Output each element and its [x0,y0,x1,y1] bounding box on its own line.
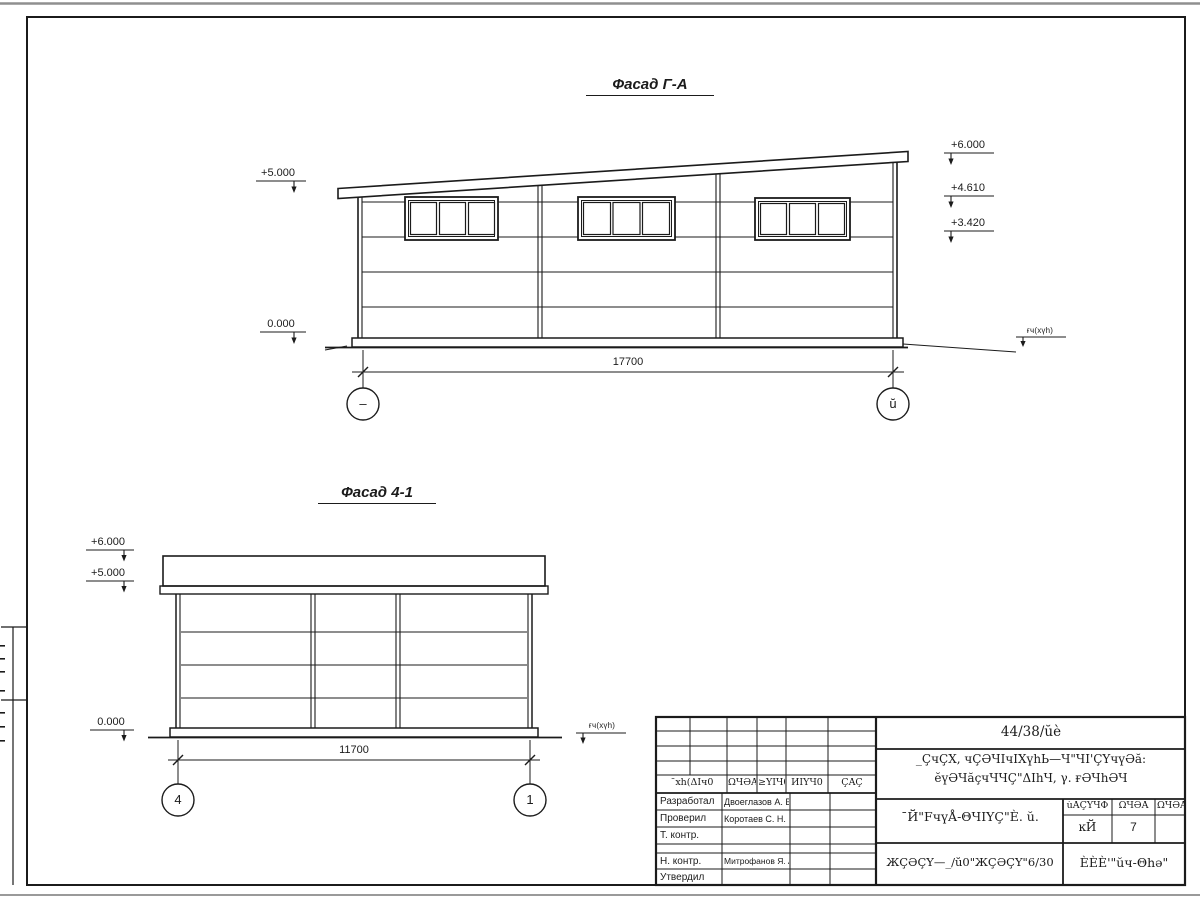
facade1-building [325,152,1016,353]
facade2-elevation-plus5000: +5.000 [84,567,132,580]
stamp-sheets-header: ΩЧӘÅΙΥ [1157,801,1184,812]
facade2-title: Фасад 4-1 [318,484,436,504]
stamp-sheet-header: ΩЧӘÅ [1113,801,1154,812]
stamp-stage-header: ùÅÇҮЧΦ [1064,801,1111,812]
stamp-doc-number: 44/38/ŭè [900,725,1162,741]
stamp-role-ncontrol: Н. контр. [660,856,720,868]
left-margin-table [1,627,27,885]
stamp-header-cell-izm: ¯хh(ΔIч0 [658,778,726,789]
facade1-elevation-plus5000: +5.000 [254,167,302,180]
facade2-axis-right-label: 1 [514,793,546,808]
stamp-project-title-line1: _ÇчÇХ, чÇӘЧIчIХүhЬ—Ч"ЧI'ÇҮчүӘă: [880,753,1182,767]
facade1-window-3 [755,198,850,240]
left-strip-text-fragments [0,645,5,742]
facade1-axis-right-label: ŭ [877,397,909,412]
facade2-elevation-plus6000: +6.000 [84,536,132,549]
facade1-elevation-zero: 0.000 [258,318,304,331]
facade1-dimension-value: 17700 [598,356,658,369]
facade1-elevation-plus4610: +4.610 [944,182,992,195]
facade2-siding-lines [181,632,527,698]
facade2-axis-left-label: 4 [162,793,194,808]
facade1-elevation-plus6000: +6.000 [944,139,992,152]
stamp-header-cell-koluch: ΩЧӘÅ [728,778,756,789]
stamp-role-tcontrol: Т. контр. [660,830,720,842]
stamp-drawing-name: ¯Й"FчүÅ-ΘЧIҮÇ"È. ŭ. [880,810,1060,824]
stamp-company-name: ÈÈÈ'"ŭч-Θhә" [1066,856,1182,870]
facade1-axis-left-label: – [347,397,379,412]
facade1-window-2 [578,197,675,240]
facade1-siding-lines [362,202,893,307]
stamp-header-cell-data: ÇÅÇ [829,778,875,789]
stamp-sheet-number: 7 [1113,821,1154,835]
facade2-elevation-zero: 0.000 [88,716,134,729]
stamp-role-checked: Проверил [660,813,720,825]
facade2-ground-level-label: ғч(xүh) [576,721,628,730]
facade2-dimension-value: 11700 [324,744,384,757]
facade1-elevation-plus3420: +3.420 [944,217,992,230]
stamp-name-mitrofanov: Митрофанов Я. А. [724,857,789,867]
facade1-window-1 [405,197,498,240]
stamp-code-label: ЖÇӘÇҮ—_/ŭ0"ЖÇӘÇҮ"6/30 [880,856,1060,869]
stamp-role-approved: Утвердил [660,872,720,884]
facade1-ground-level-label: ғч(xүh) [1014,326,1066,335]
drawing-sheet: Фасад Г-А +5.000 0.000 +6.000 +4.610 +3.… [0,0,1200,900]
stamp-header-cell-list: ≥ΥΙЧ0 [758,778,785,789]
stamp-stage-value: ĸЙ [1064,821,1111,835]
stamp-role-developed: Разработал [660,796,720,808]
stamp-project-title-line2: ӗүӘЧăçчЧЧÇ"ΔIhЧ, γ. ғӘЧhӘЧ [880,772,1182,786]
facade2-building [148,556,562,738]
stamp-name-korotaev: Коротаев С. Н. [724,814,789,824]
facade1-title: Фасад Г-А [586,76,714,96]
stamp-name-dvoeglazov: Двоеглазов А. В. [724,797,789,807]
stamp-header-cell-dok: ЙIҮЧ0 [787,778,827,789]
